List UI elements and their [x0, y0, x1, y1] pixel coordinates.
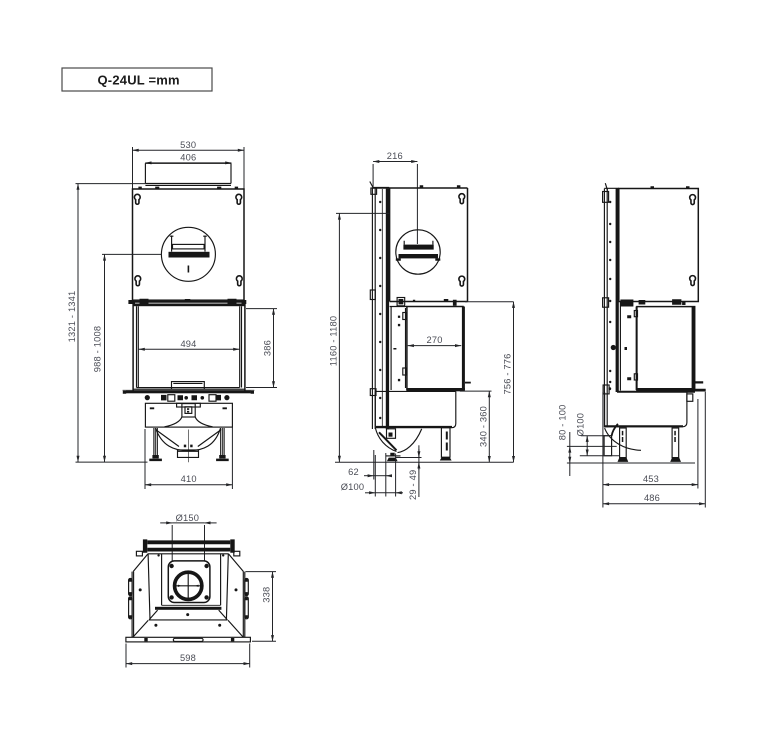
svg-text:1160 - 1180: 1160 - 1180 [329, 316, 339, 366]
svg-text:270: 270 [427, 335, 443, 345]
svg-text:80 - 100: 80 - 100 [557, 405, 567, 441]
svg-text:338: 338 [262, 587, 272, 603]
svg-text:Ø150: Ø150 [176, 513, 200, 523]
svg-text:340 - 360: 340 - 360 [479, 406, 489, 447]
svg-text:494: 494 [180, 339, 196, 349]
svg-text:453: 453 [643, 474, 659, 484]
svg-text:530: 530 [180, 140, 196, 150]
svg-text:988 - 1008: 988 - 1008 [92, 326, 102, 372]
svg-text:486: 486 [644, 493, 660, 503]
svg-text:1321 - 1341: 1321 - 1341 [67, 291, 77, 343]
svg-text:62: 62 [348, 467, 359, 477]
svg-text:410: 410 [181, 474, 197, 484]
svg-text:216: 216 [387, 151, 403, 161]
svg-text:386: 386 [263, 340, 273, 356]
svg-text:756 - 776: 756 - 776 [503, 353, 513, 394]
svg-text:406: 406 [180, 153, 196, 163]
svg-text:Q-24UL =mm: Q-24UL =mm [98, 73, 180, 88]
svg-text:598: 598 [180, 653, 196, 663]
svg-text:Ø100: Ø100 [341, 482, 365, 492]
svg-text:29 - 49: 29 - 49 [408, 470, 418, 500]
svg-text:Ø100: Ø100 [576, 413, 586, 437]
